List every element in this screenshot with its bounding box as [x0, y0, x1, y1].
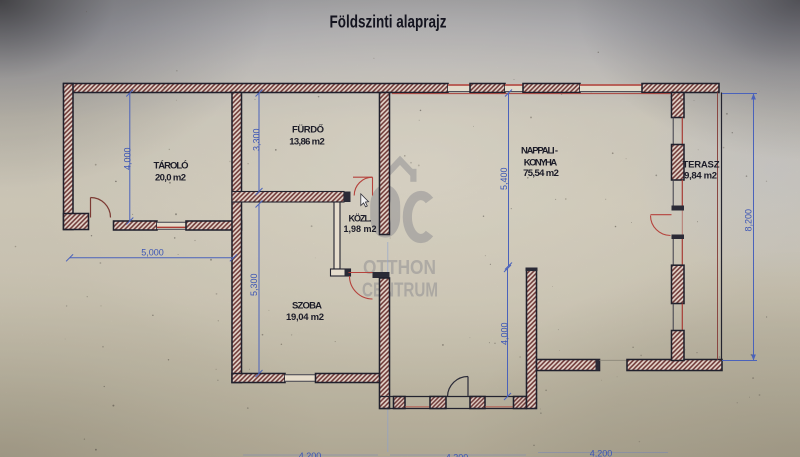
- svg-text:5,400: 5,400: [499, 167, 509, 190]
- svg-text:9,84 m2: 9,84 m2: [684, 171, 717, 182]
- svg-text:5,300: 5,300: [249, 273, 259, 296]
- svg-text:8,200: 8,200: [744, 209, 754, 232]
- svg-text:5,000: 5,000: [141, 248, 164, 258]
- svg-text:Földszinti alaprajz: Földszinti alaprajz: [330, 12, 447, 32]
- svg-text:4,000: 4,000: [500, 322, 510, 345]
- svg-text:FÜRDŐ: FÜRDŐ: [292, 123, 324, 135]
- svg-text:75,54 m2: 75,54 m2: [523, 168, 559, 179]
- svg-text:19,04 m2: 19,04 m2: [286, 312, 324, 323]
- svg-text:NAPPALI -: NAPPALI -: [521, 145, 558, 156]
- svg-text:4,200: 4,200: [590, 449, 613, 457]
- svg-text:1,98 m2: 1,98 m2: [344, 224, 377, 234]
- svg-text:SZOBA: SZOBA: [292, 301, 322, 312]
- svg-text:3,300: 3,300: [252, 128, 262, 151]
- svg-text:KONYHA: KONYHA: [524, 157, 558, 168]
- svg-text:KÖZL.: KÖZL.: [349, 213, 372, 223]
- svg-text:CENTRUM: CENTRUM: [362, 280, 438, 302]
- svg-text:4,000: 4,000: [123, 147, 133, 170]
- svg-text:4,200: 4,200: [299, 451, 322, 457]
- svg-text:TERASZ: TERASZ: [683, 159, 720, 170]
- svg-text:4,200: 4,200: [446, 453, 469, 457]
- svg-text:13,86 m2: 13,86 m2: [289, 137, 325, 148]
- svg-text:TÁROLÓ: TÁROLÓ: [154, 160, 189, 172]
